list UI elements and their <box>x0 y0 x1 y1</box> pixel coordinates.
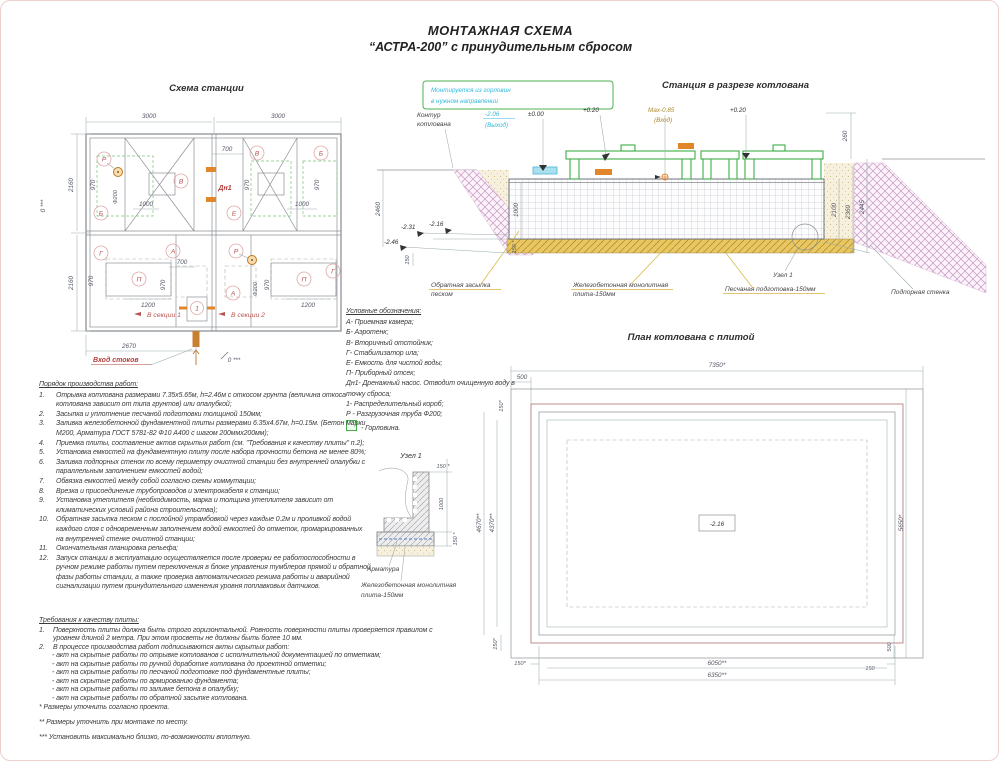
item-text: Запуск станции в эксплуатацию осуществля… <box>56 554 371 592</box>
level-zero: ±0.00 <box>528 111 544 118</box>
dim-2360: 2360 <box>845 205 852 221</box>
plan-dim-labels: 3000 3000 2160 2160 0 *** 700 970 Ф200 9… <box>40 113 321 364</box>
item-number: 10. <box>39 515 56 544</box>
dim-3000-right: 3000 <box>271 113 286 120</box>
node-detail-drawing: Узел 1 150 * 1000 150 * Арматура Железоб <box>359 447 474 605</box>
station-plan-drawing: 3000 3000 2160 2160 0 *** 700 970 Ф200 9… <box>29 101 364 371</box>
item-number: 3. <box>39 419 56 438</box>
plate-label2: плита-150мм <box>573 291 616 298</box>
node-plate-label1: Железобетонная монолитная <box>360 581 457 589</box>
label-b2: Б <box>319 151 324 158</box>
item-number: 6. <box>39 458 56 477</box>
act-item: - акт на скрытые работы по обратной засы… <box>52 695 443 704</box>
hidden-works-acts: - акт на скрытые работы по отрывке котло… <box>39 652 443 703</box>
dim-2160-bottom: 2160 <box>68 276 75 292</box>
dim-970-tr2: 970 <box>314 179 321 190</box>
node-sand <box>377 546 434 556</box>
legend-item: А- Приемная камера; <box>346 318 532 328</box>
item-text: Установка утеплителя (необходимость, мар… <box>56 496 371 515</box>
act-item: - акт на скрытые работы по ручной дорабо… <box>52 661 443 670</box>
dim-5650: 5650* <box>898 514 905 531</box>
dim-1200-br: 1200 <box>301 302 316 309</box>
work-order-item: 7.Обвязка емкостей между собой согласно … <box>39 477 371 487</box>
dim-150-right: 150 <box>865 666 875 672</box>
dim-970-tl: 970 <box>90 179 97 190</box>
item-text: Заливка подпорных стенок по всему периме… <box>56 458 371 477</box>
inlet-pipe-b <box>678 143 694 149</box>
label-v1: В <box>179 179 184 186</box>
label-a2: А <box>230 291 236 298</box>
page-subtitle: “АСТРА-200” с принудительным сбросом <box>1 40 999 54</box>
dim-4670: 4670** <box>476 513 483 532</box>
item-number: 9. <box>39 496 56 515</box>
node1-label: Узел 1 <box>772 272 793 279</box>
label-r2: Р <box>234 249 239 256</box>
dim-970-bl: 970 <box>88 275 95 286</box>
inlet-pipe-a <box>595 169 612 175</box>
requirement-item: 2.В процессе производства работ подписыв… <box>39 644 443 653</box>
dim-500-right: 500 <box>887 641 893 651</box>
work-order-item: 3.Заливка железобетонной фундаментной пл… <box>39 419 371 438</box>
dim-700-top: 700 <box>222 146 233 153</box>
plate-label1: Железобетонная монолитная <box>572 281 669 289</box>
item-number: 2. <box>39 410 56 420</box>
section-drawing: Монтируется из горловин в нужном направл… <box>373 79 988 314</box>
work-order-title: Порядок производства работ: <box>39 380 371 390</box>
act-item: - акт на скрытые работы по заливке бетон… <box>52 686 443 695</box>
legend-title: Условные обозначения: <box>346 307 532 317</box>
node-dim-1000: 1000 <box>439 497 445 510</box>
pit-plan-title: План котлована с плитой <box>566 332 816 343</box>
work-order-item: 6.Заливка подпорных стенок по всему пери… <box>39 458 371 477</box>
item-text: Отрывка котлована размерами 7.35х5.65м, … <box>56 391 371 410</box>
dim-2160-top: 2160 <box>68 178 75 194</box>
work-order-item: 4.Приемка плиты, составление актов скрыт… <box>39 439 371 449</box>
footnote: * Размеры уточнить согласно проекта. <box>39 703 399 713</box>
pit-plan-dims: 7350* 500 150* 4670** 4370** 5650* 500 1… <box>476 362 923 685</box>
act-item: - акт на скрытые работы по армированию ф… <box>52 678 443 687</box>
label-1: 1 <box>195 306 199 313</box>
dim-970-tr1: 970 <box>244 179 251 190</box>
backfill-label2: песком <box>431 291 453 298</box>
item-number: 8. <box>39 487 56 497</box>
dim-970-br: 970 <box>264 279 271 290</box>
work-order-item: 12.Запуск станции в эксплуатацию осущест… <box>39 554 371 592</box>
dim-970-bl2: 970 <box>160 279 167 290</box>
dim-2460: 2460 <box>375 202 382 218</box>
level-m246: -2.46 <box>384 239 399 246</box>
item-number: 2. <box>39 644 53 653</box>
node-plate-label2: плита-150мм <box>361 592 404 599</box>
pit-plan-rects: -2.16 <box>511 389 923 658</box>
note-line1: Монтируется из горловин <box>431 87 511 94</box>
work-order-item: 1.Отрывка котлована размерами 7.35х5.65м… <box>39 391 371 410</box>
plan-title: Схема станции <box>119 83 294 94</box>
item-number: 7. <box>39 477 56 487</box>
section-note: Монтируется из горловин в нужном направл… <box>423 81 613 109</box>
item-number: 1. <box>39 391 56 410</box>
label-r1: Р <box>102 157 107 164</box>
tank-body <box>509 179 824 250</box>
requirements-title: Требования к качеству плиты: <box>39 617 443 626</box>
dim-150-bottomleft: 150* <box>514 661 526 667</box>
sand-bed <box>507 239 854 253</box>
dim-2670: 2670 <box>121 343 137 350</box>
dim-1200-bl: 1200 <box>141 302 156 309</box>
label-v2: В <box>255 151 260 158</box>
item-number: 11. <box>39 544 56 554</box>
dim-1000-tr: 1000 <box>295 201 310 208</box>
kontur-line1: Контур <box>417 112 441 119</box>
level-out: -2.06 <box>485 111 500 118</box>
dim-6050: 6050** <box>708 660 727 667</box>
level-020-b: +0.20 <box>730 107 746 114</box>
dim-2100: 2100 <box>831 203 838 219</box>
sand-label: Песчаная подготовка-150мм <box>725 285 816 293</box>
level-020-a: +0.20 <box>583 107 599 114</box>
level-max-sub: (Вход) <box>654 116 672 124</box>
footnote: *** Установить максимально близко, по-во… <box>39 733 399 743</box>
footnotes: * Размеры уточнить согласно проекта. ** … <box>39 703 399 748</box>
level-m216: -2.16 <box>429 221 444 228</box>
node-dim-150-top: 150 * <box>436 464 450 470</box>
label-a1: А <box>170 249 176 256</box>
slope-hatch-right <box>854 163 986 293</box>
act-item: - акт на скрытые работы по песчаной подг… <box>52 669 443 678</box>
work-order-item: 5.Установка емкостей на фундаментную пли… <box>39 448 371 458</box>
note-section1: В секции 1 <box>147 312 181 319</box>
dim-7350: 7350* <box>709 362 726 369</box>
retaining-wall-label: Подпорная стенка <box>891 288 950 296</box>
note-line2: в нужном направлении <box>431 98 499 105</box>
dim-1000-tl: 1000 <box>139 201 154 208</box>
level-max: Мах-0.85 <box>648 107 675 114</box>
dim-500-top: 500 <box>517 374 528 381</box>
note-section2: В секции 2 <box>231 312 265 319</box>
item-number: 4. <box>39 439 56 449</box>
item-text: Засыпка и уплотнение песчаной подготовки… <box>56 410 371 420</box>
level-m231: -2.31 <box>401 224 415 231</box>
inlet-label: Вход стоков <box>93 356 139 364</box>
level-zero-bottom: 0 *** <box>228 357 241 364</box>
dim-700-bl: 700 <box>177 259 188 266</box>
work-order-item: 2.Засыпка и уплотнение песчаной подготов… <box>39 410 371 420</box>
legend-item: Б- Аэротенк; <box>346 328 532 338</box>
dim-4370: 4370** <box>489 513 496 532</box>
label-e: Е <box>232 211 237 218</box>
plan-dimensions <box>71 117 341 356</box>
work-order-item: 8.Врезка и присоединение трубопроводов и… <box>39 487 371 497</box>
dim-1000: 1000 <box>513 203 520 218</box>
work-order: Порядок производства работ: 1.Отрывка ко… <box>39 380 371 592</box>
act-item: - акт на скрытые работы по отрывке котло… <box>52 652 443 661</box>
label-dn1: Дн1 <box>217 185 231 192</box>
label-g2: Г <box>331 269 336 276</box>
pit-plan-drawing: -2.16 7350* 500 150* 4670** 4370** 5650*… <box>466 346 936 701</box>
node-shapes <box>377 468 434 556</box>
item-text: Поверхность плиты должна быть строго гор… <box>53 627 443 644</box>
item-text: Врезка и присоединение трубопроводов и э… <box>56 487 371 497</box>
work-order-item: 10.Обратная засыпка песком с послойной у… <box>39 515 371 544</box>
dim-150-left: 150* <box>493 637 499 649</box>
work-order-item: 9.Установка утеплителя (необходимость, м… <box>39 496 371 515</box>
dim-f200-br: Ф200 <box>253 281 259 296</box>
drawing-sheet: МОНТАЖНАЯ СХЕМА “АСТРА-200” с принудител… <box>0 0 999 761</box>
label-p1: П <box>137 277 142 284</box>
kontur-line2: котлована <box>417 121 451 128</box>
pit-level: -2.16 <box>710 521 725 528</box>
node-dim-150-bottom: 150 * <box>453 532 459 546</box>
dim-6350: 6350** <box>708 672 727 679</box>
work-order-item: 11.Окончательная планировка рельефа; <box>39 544 371 554</box>
label-p2: П <box>302 277 307 284</box>
item-text: Приемка плиты, составление актов скрытых… <box>56 439 371 449</box>
collars <box>533 143 823 180</box>
dim-150: 150 <box>405 254 411 264</box>
footnote: ** Размеры уточнить при монтаже по месту… <box>39 718 399 728</box>
item-text: Обвязка емкостей между собой согласно сх… <box>56 477 371 487</box>
level-out-sub: (Выход) <box>485 121 508 129</box>
dim-260: 260 <box>842 130 849 142</box>
item-number: 5. <box>39 448 56 458</box>
requirement-item: 1.Поверхность плиты должна быть строго г… <box>39 627 443 644</box>
item-number: 12. <box>39 554 56 592</box>
dim-f200-tl: Ф200 <box>113 189 119 204</box>
label-b1: Б <box>99 211 104 218</box>
item-text: Заливка железобетонной фундаментной плит… <box>56 419 371 438</box>
item-text: Окончательная планировка рельефа; <box>56 544 371 554</box>
item-text: Установка емкостей на фундаментную плиту… <box>56 448 371 458</box>
item-number: 1. <box>39 627 53 644</box>
dim-150-topleft: 150* <box>499 399 505 411</box>
page-title: МОНТАЖНАЯ СХЕМА <box>1 23 999 38</box>
level-zero-left: 0 *** <box>40 199 47 212</box>
outlet-pipe <box>533 167 557 174</box>
item-text: В процессе производства работ подписываю… <box>53 644 443 653</box>
label-g1: Г <box>99 251 104 258</box>
node-title: Узел 1 <box>399 451 422 460</box>
dim-2445: 2445 <box>859 200 866 216</box>
item-text: Обратная засыпка песком с послойной утра… <box>56 515 371 544</box>
dim-150s: 150 * <box>512 240 518 254</box>
dim-3000-left: 3000 <box>142 113 157 120</box>
armature-label: Арматура <box>366 566 399 573</box>
plate-requirements: Требования к качеству плиты: 1.Поверхнос… <box>39 617 443 703</box>
